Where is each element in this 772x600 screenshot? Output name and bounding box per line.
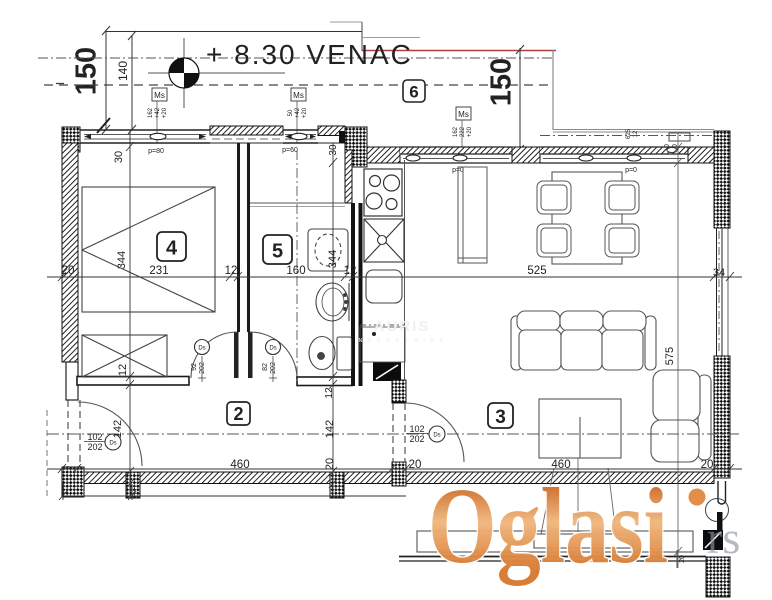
svg-text:202: 202 (409, 434, 424, 444)
svg-text:4: 4 (166, 238, 178, 260)
svg-text:Ms: Ms (458, 110, 469, 119)
svg-text:p=80: p=80 (148, 148, 164, 155)
svg-text:460: 460 (230, 459, 249, 471)
svg-text:+42: +42 (295, 107, 301, 118)
svg-text:Ds: Ds (269, 346, 276, 352)
svg-text:6: 6 (409, 83, 418, 102)
svg-text:+20: +20 (162, 107, 168, 118)
svg-text:5: 5 (272, 241, 283, 263)
svg-text:202: 202 (87, 442, 102, 452)
svg-text:12: 12 (324, 387, 335, 399)
svg-text:162: 162 (148, 107, 154, 118)
svg-text:202: 202 (270, 362, 277, 374)
svg-text:202: 202 (199, 362, 206, 374)
svg-text:2: 2 (233, 404, 243, 424)
svg-text:+42: +42 (155, 107, 161, 118)
svg-text:92: 92 (191, 363, 198, 371)
svg-text:Oglasi: Oglasi (428, 467, 668, 586)
svg-text:3: 3 (495, 407, 506, 428)
svg-text:AURIS: AURIS (374, 318, 431, 335)
svg-text:20: 20 (324, 458, 336, 470)
svg-text:160: 160 (286, 265, 305, 277)
svg-text:30: 30 (113, 151, 125, 163)
svg-text:+ 8.30 VENAC: + 8.30 VENAC (206, 39, 413, 70)
svg-text:142: 142 (112, 420, 124, 438)
svg-text:102: 102 (409, 424, 424, 434)
svg-text:142: 142 (324, 420, 336, 438)
svg-text:102: 102 (87, 432, 102, 442)
svg-text:rs: rs (707, 512, 740, 563)
svg-text:12: 12 (117, 364, 129, 376)
svg-text:150: 150 (486, 58, 518, 106)
svg-text:+20: +20 (467, 126, 473, 137)
svg-text:140: 140 (116, 61, 130, 81)
svg-text:50: 50 (288, 109, 294, 116)
svg-text:20: 20 (409, 459, 422, 471)
svg-text:Ms: Ms (293, 91, 304, 100)
svg-text:20: 20 (679, 555, 686, 563)
svg-text:Ds: Ds (198, 346, 205, 352)
svg-text:12: 12 (633, 130, 639, 137)
svg-text:344: 344 (116, 251, 128, 269)
svg-text:150: 150 (71, 47, 103, 95)
svg-text:525: 525 (527, 265, 546, 277)
svg-text:N E K R E T N I N E: N E K R E T N I N E (358, 338, 445, 344)
svg-text:Ds: Ds (109, 441, 116, 447)
svg-text:p=0: p=0 (625, 167, 637, 174)
svg-text:82: 82 (262, 363, 269, 371)
svg-text:231: 231 (149, 265, 168, 277)
svg-text:12: 12 (225, 265, 238, 277)
svg-text:Ds: Ds (433, 433, 440, 439)
svg-text:20: 20 (62, 265, 75, 277)
svg-text:575: 575 (664, 347, 676, 365)
svg-text:30: 30 (328, 144, 339, 156)
svg-text:Ms: Ms (154, 91, 165, 100)
svg-text:34: 34 (713, 267, 725, 279)
svg-text:222: 222 (460, 126, 466, 137)
svg-text:+20: +20 (302, 107, 308, 118)
svg-text:344: 344 (327, 250, 339, 268)
svg-text:625: 625 (626, 128, 632, 139)
svg-text:162: 162 (453, 126, 459, 137)
svg-text:20: 20 (701, 459, 714, 471)
svg-text:p=60: p=60 (282, 147, 298, 154)
svg-text:12: 12 (344, 265, 357, 277)
